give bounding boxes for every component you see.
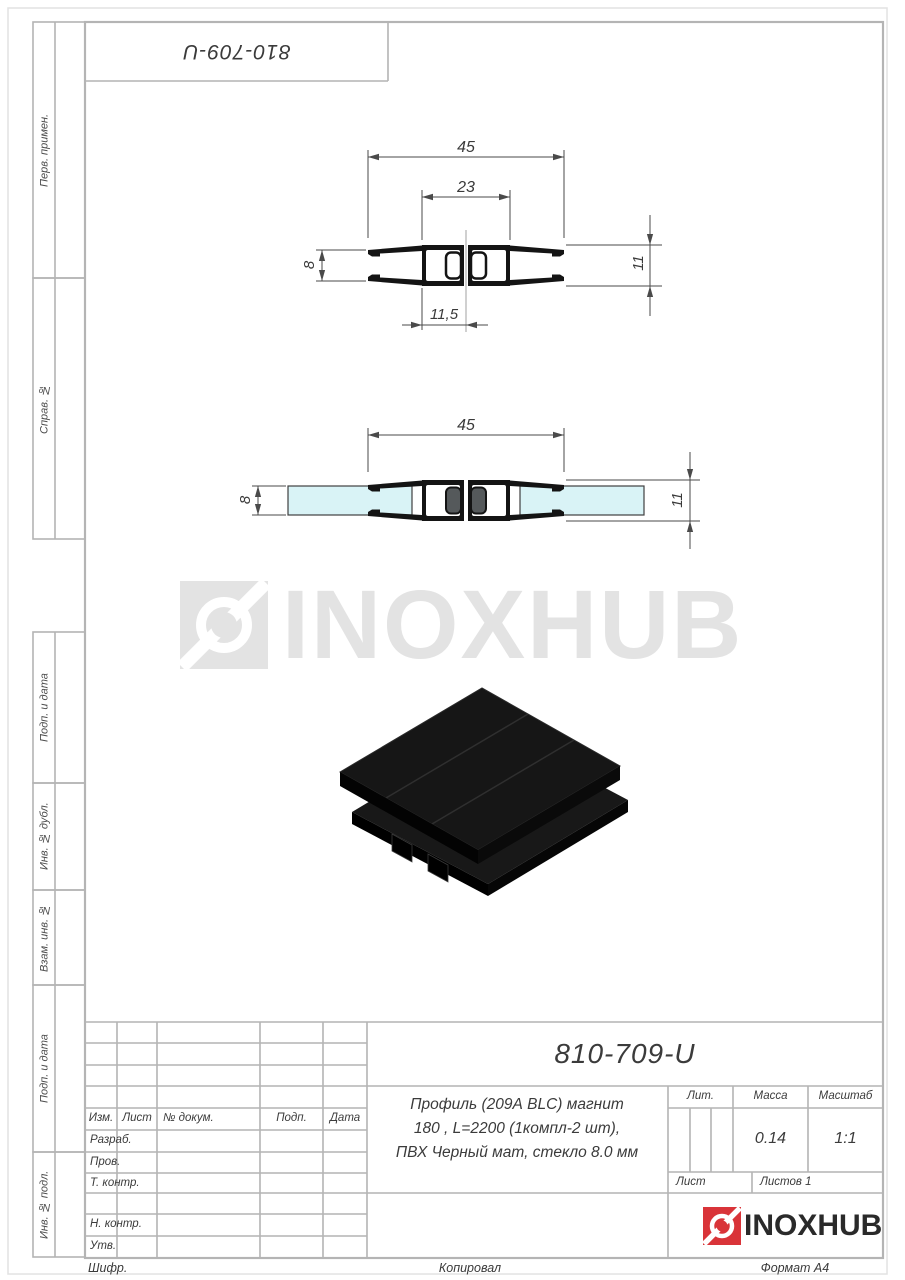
tb-col-izm: Изм.: [85, 1112, 117, 1124]
dim-overall-width-top: 45: [436, 139, 496, 157]
inoxhub-logo-icon: [703, 1207, 741, 1245]
dim-height-glass: 11: [669, 486, 685, 514]
tb-row-nkontr: Н. контр.: [90, 1218, 142, 1230]
tb-col-list: Лист: [117, 1112, 157, 1124]
glass-panel-left: [288, 486, 412, 515]
tb-description-line3: ПВХ Черный мат, стекло 8.0 мм: [372, 1141, 662, 1165]
tb-sheets-label: Листов 1: [760, 1176, 811, 1188]
margin-label-podp-data-2: Подп. и дата: [33, 985, 56, 1152]
tb-massa-value: 0.14: [733, 1130, 808, 1148]
dim-half-width-top: 11,5: [414, 306, 474, 323]
margin-label-vzam-inv: Взам. инв. №: [33, 890, 56, 985]
margin-label-inv-podl: Инв. № подл.: [33, 1152, 56, 1257]
profile-3d-render: [340, 688, 628, 896]
tb-sheet-label: Лист: [676, 1176, 706, 1188]
inoxhub-logo-text: INOXHUB: [744, 1207, 880, 1245]
tb-description: Профиль (209А BLC) магнит 180 , L=2200 (…: [372, 1093, 662, 1165]
sheet-frame: [8, 8, 887, 1274]
dim-height-top: 11: [630, 249, 646, 277]
dim-overall-width-glass: 45: [436, 417, 496, 435]
tb-massa-label: Масса: [733, 1090, 808, 1102]
tb-description-line2: 180 , L=2200 (1компл-2 шт),: [372, 1117, 662, 1141]
tb-lit-label: Лит.: [668, 1090, 733, 1102]
top-stamp-designation: 810-709-U: [85, 22, 388, 81]
dim-inner-width-top: 23: [436, 179, 496, 197]
margin-label-podp-data-1: Подп. и дата: [33, 632, 56, 783]
tb-row-tkontr: Т. контр.: [90, 1177, 140, 1189]
tb-masshtab-label: Масштаб: [808, 1090, 883, 1102]
dim-glass-thickness: 8: [237, 488, 253, 512]
margin-label-perv-primen: Перв. примен.: [33, 22, 56, 278]
tb-designation: 810-709-U: [367, 1038, 883, 1070]
margin-label-inv-dubl: Инв. № дубл.: [33, 783, 56, 890]
tb-col-podp: Подп.: [260, 1112, 323, 1124]
footer-format: Формат А4: [735, 1261, 855, 1275]
cross-section-with-glass: [252, 428, 700, 549]
drawing-sheet: INOXHUB: [0, 0, 905, 1280]
dim-glass-gap-top: 8: [301, 253, 317, 277]
tb-description-line1: Профиль (209А BLC) магнит: [372, 1093, 662, 1117]
footer-copied: Копировал: [420, 1261, 520, 1275]
tb-masshtab-value: 1:1: [808, 1130, 883, 1148]
cross-section-top: [316, 150, 662, 332]
margin-label-sprav-no: Справ. №: [33, 278, 56, 539]
footer-cipher: Шифр.: [88, 1261, 127, 1275]
tb-row-utv: Утв.: [90, 1240, 116, 1252]
dimension-lines-top: [316, 150, 662, 330]
tb-col-data: Дата: [323, 1112, 367, 1124]
tb-row-razrab: Разраб.: [90, 1134, 132, 1146]
glass-panel-right: [520, 486, 644, 515]
tb-col-dokum: № докум.: [163, 1112, 214, 1124]
tb-row-prov: Пров.: [90, 1156, 120, 1168]
